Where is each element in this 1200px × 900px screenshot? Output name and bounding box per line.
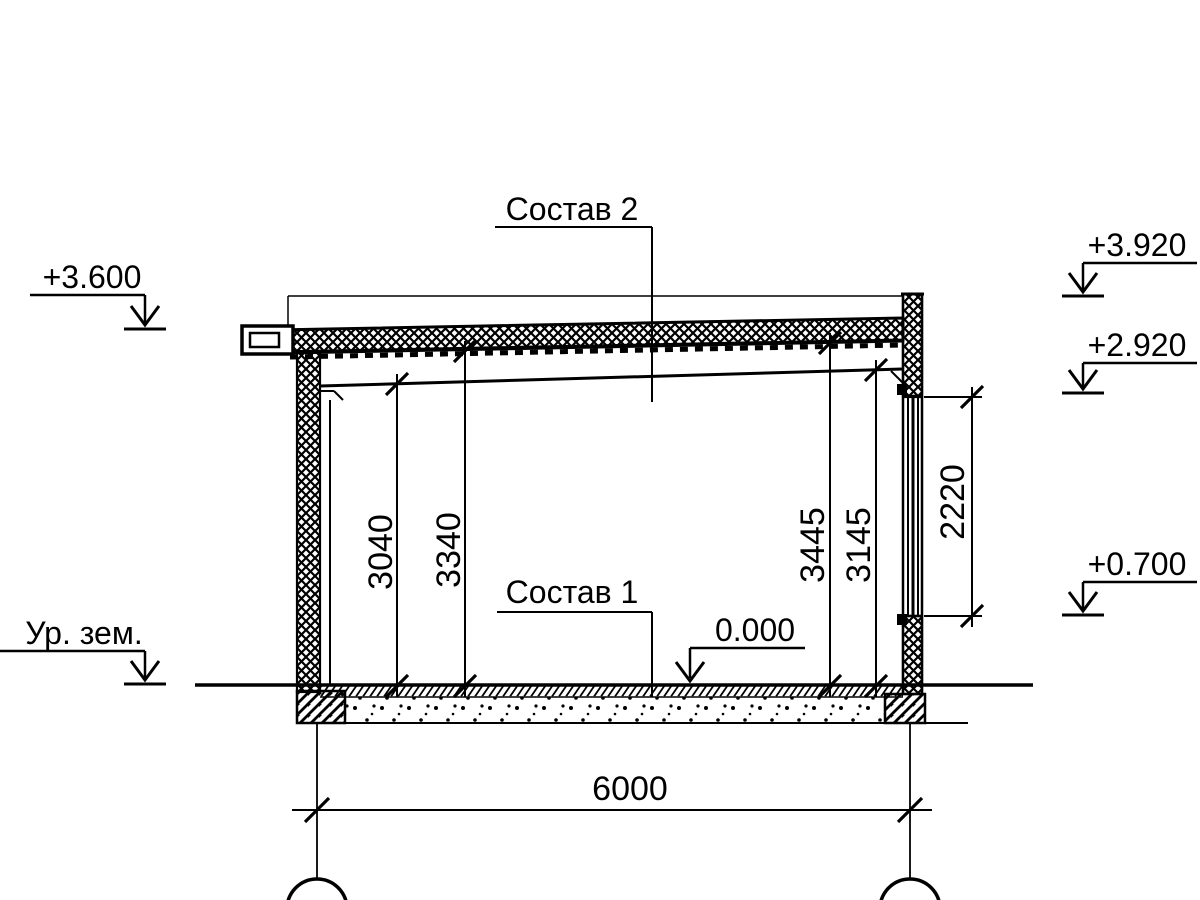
- elevation-mark-3920: +3.920: [1062, 227, 1197, 296]
- roof-assembly: [242, 296, 903, 685]
- label-sostav-2: Состав 2: [506, 191, 639, 227]
- window-sill-anchor: [897, 614, 907, 625]
- elevation-0700-text: +0.700: [1088, 546, 1187, 582]
- axis-bubble-left: [287, 879, 347, 900]
- vertical-dimension-texts: 3040 3340 3445 3145 2220: [362, 464, 972, 590]
- ground-level-text: Ур. зем.: [25, 615, 142, 651]
- axis-bubble-right: [880, 879, 940, 900]
- dim-6000: 6000: [592, 770, 668, 808]
- floor-screed-band: [320, 685, 903, 697]
- left-beam-haunch: [320, 391, 343, 685]
- eave-gutter: [242, 326, 293, 354]
- elevation-3920-text: +3.920: [1088, 227, 1187, 263]
- elevation-mark-0700: +0.700: [1062, 546, 1197, 615]
- dim-3040: 3040: [362, 514, 400, 590]
- span-dimension: 6000: [292, 770, 932, 822]
- elevation-mark-0000: 0.000: [676, 612, 805, 681]
- label-sostav-1: Состав 1: [506, 574, 639, 610]
- dim-3340: 3340: [430, 512, 468, 588]
- elevation-mark-3600: +3.600: [30, 259, 166, 329]
- vertical-dimensions: [386, 332, 983, 697]
- elevation-mark-2920: +2.920: [1062, 327, 1197, 393]
- left-wall: [297, 351, 320, 692]
- elevation-3600-text: +3.600: [43, 259, 142, 295]
- floor-bedding-layer: [345, 697, 885, 723]
- elevation-0000-text: 0.000: [715, 612, 795, 648]
- section-drawing-svg: 3040 3340 3445 3145 2220 6000 Состав 2 С…: [0, 0, 1200, 900]
- dim-3445: 3445: [794, 507, 832, 583]
- right-parapet-wall: [903, 294, 922, 397]
- ceiling-beam-line: [320, 369, 903, 386]
- right-foundation: [885, 694, 925, 723]
- left-foundation: [297, 691, 345, 723]
- dim-2220: 2220: [934, 464, 972, 540]
- elevation-mark-ground: Ур. зем.: [0, 615, 166, 684]
- right-beam-chamfer: [891, 371, 903, 383]
- window: [897, 384, 922, 625]
- building-section-drawing: 3040 3340 3445 3145 2220 6000 Состав 2 С…: [0, 0, 1200, 900]
- axis-grid: [287, 723, 940, 900]
- dim-3145: 3145: [840, 507, 878, 583]
- leader-sostav1: Состав 1: [497, 574, 652, 697]
- right-wall-below-window: [903, 616, 922, 694]
- window-head-anchor: [897, 384, 907, 395]
- elevation-2920-text: +2.920: [1088, 327, 1187, 363]
